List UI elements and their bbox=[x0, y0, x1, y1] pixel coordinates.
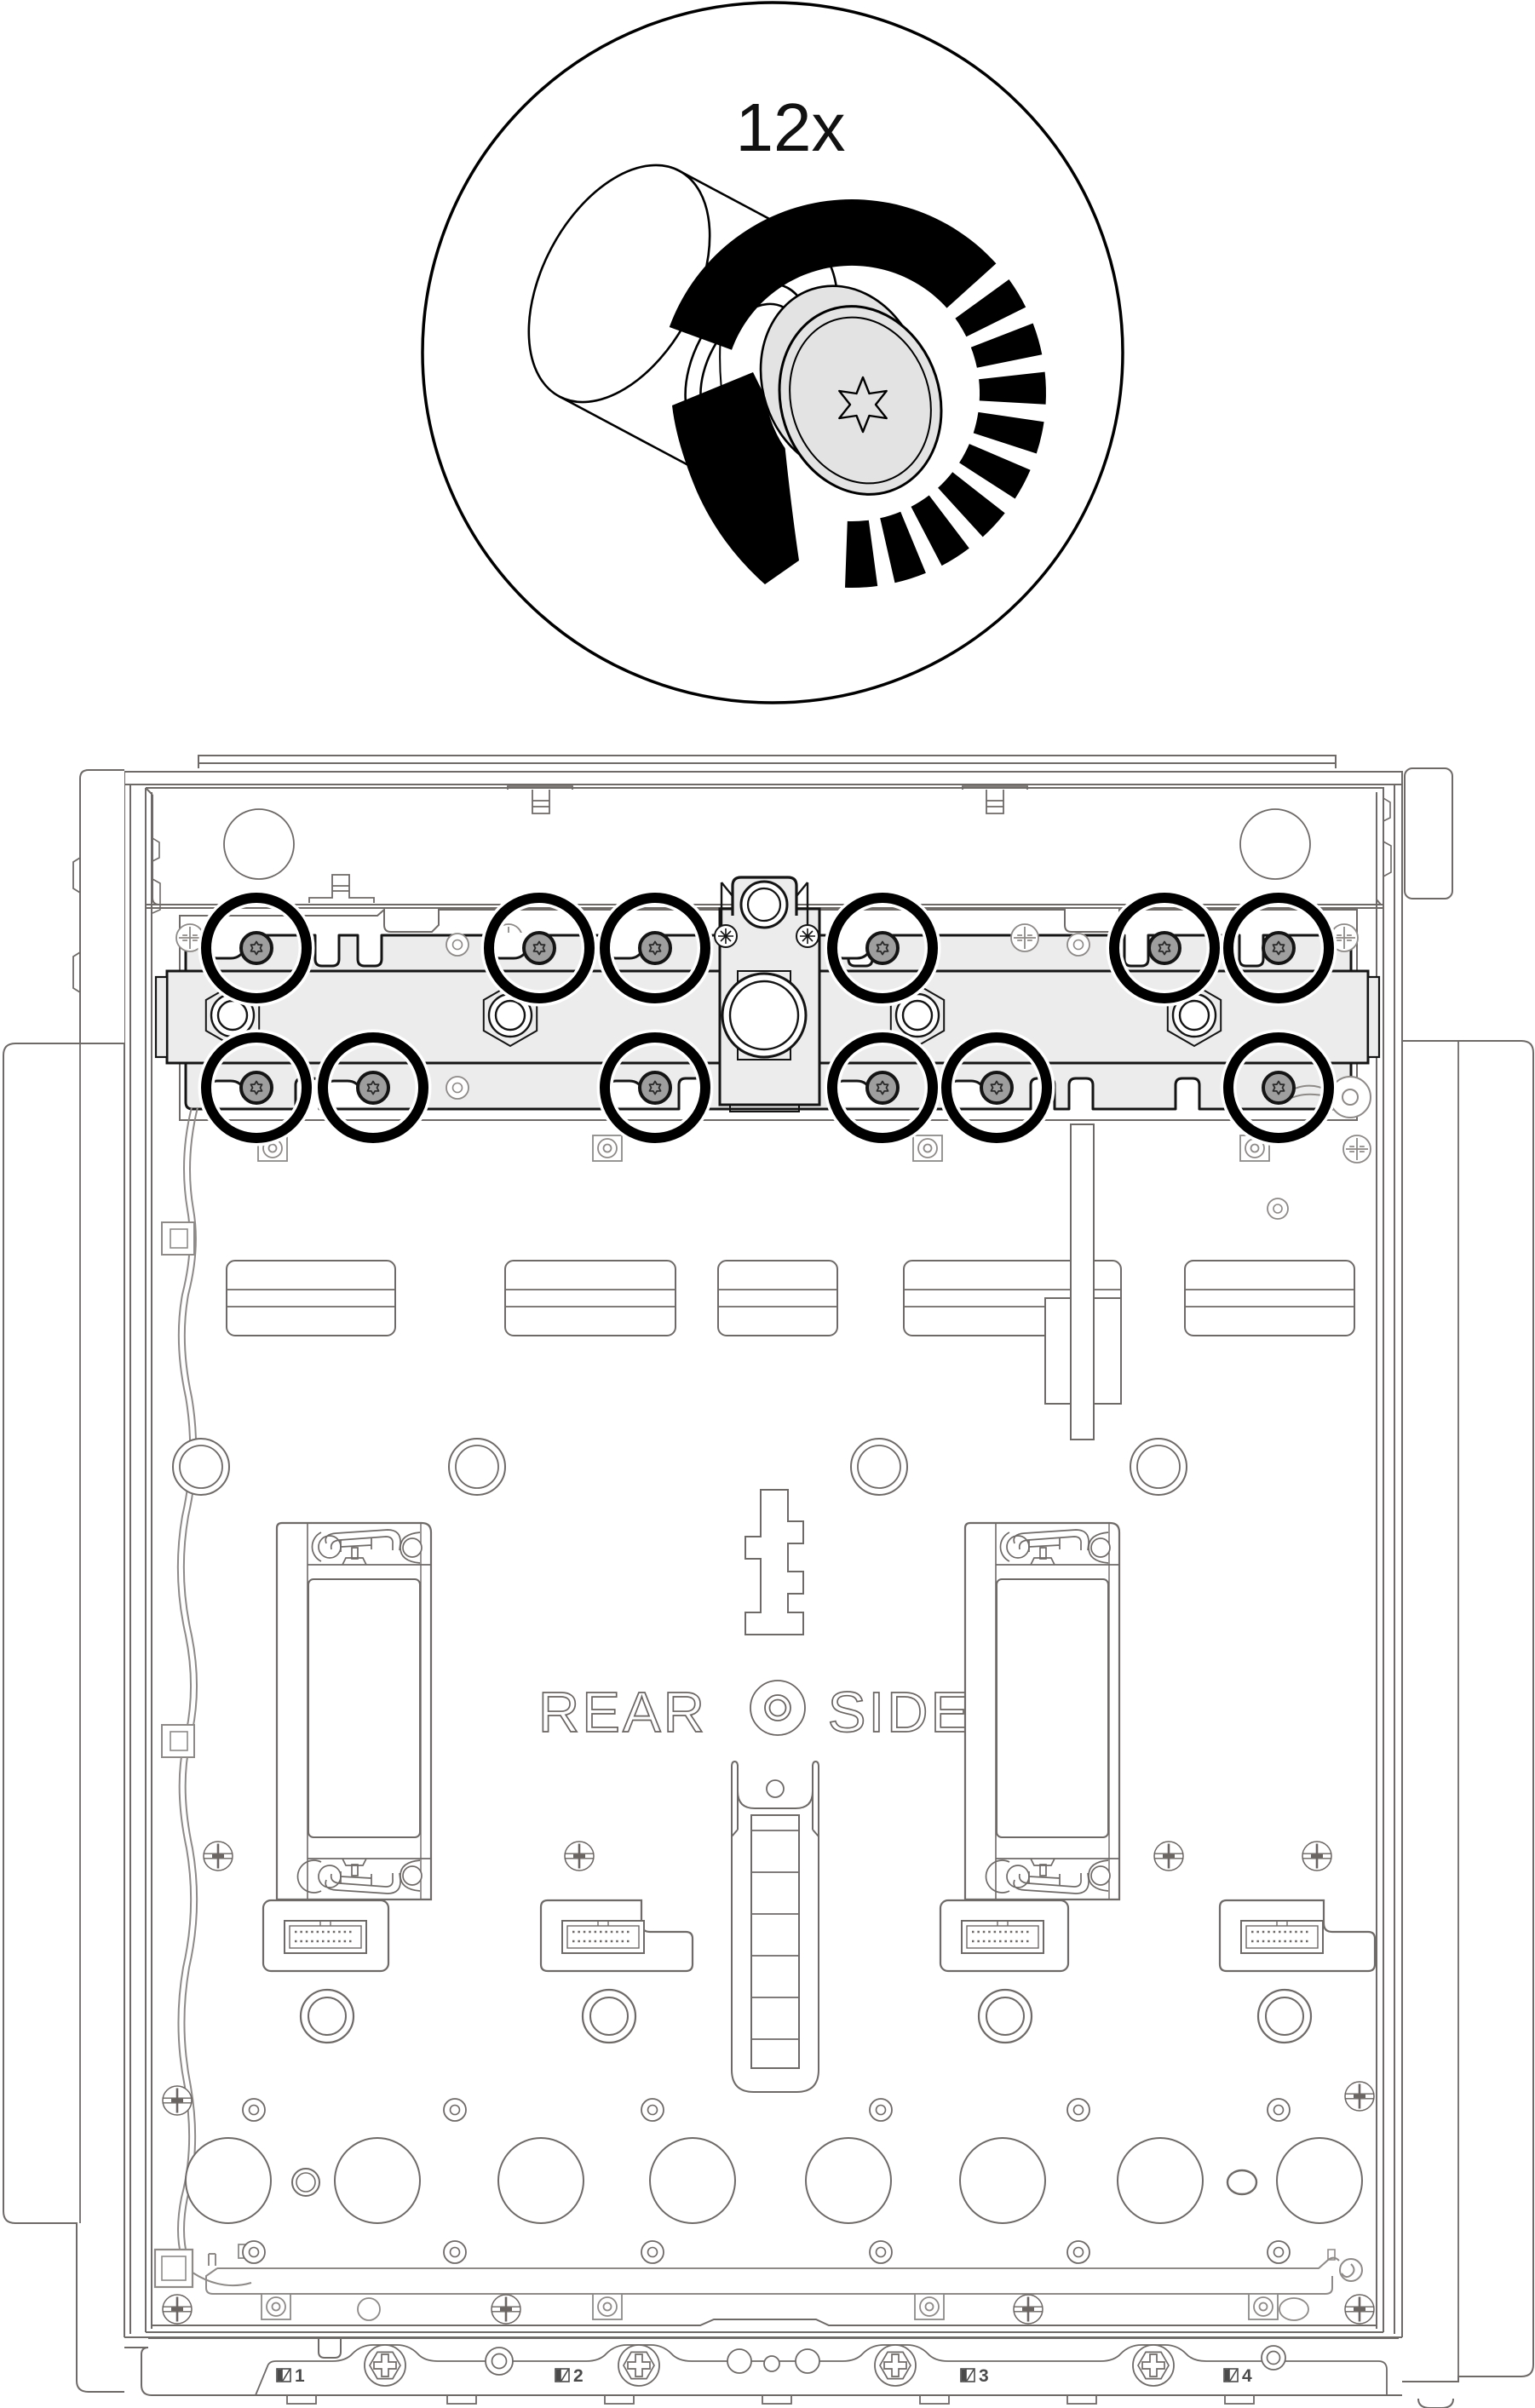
svg-text:REAR: REAR bbox=[538, 1681, 707, 1744]
svg-text:12x: 12x bbox=[736, 89, 846, 165]
svg-text:1: 1 bbox=[295, 2366, 305, 2386]
svg-text:4: 4 bbox=[1242, 2366, 1252, 2386]
svg-text:3: 3 bbox=[979, 2366, 989, 2386]
svg-text:2: 2 bbox=[573, 2366, 584, 2386]
svg-text:SIDE: SIDE bbox=[828, 1681, 971, 1744]
